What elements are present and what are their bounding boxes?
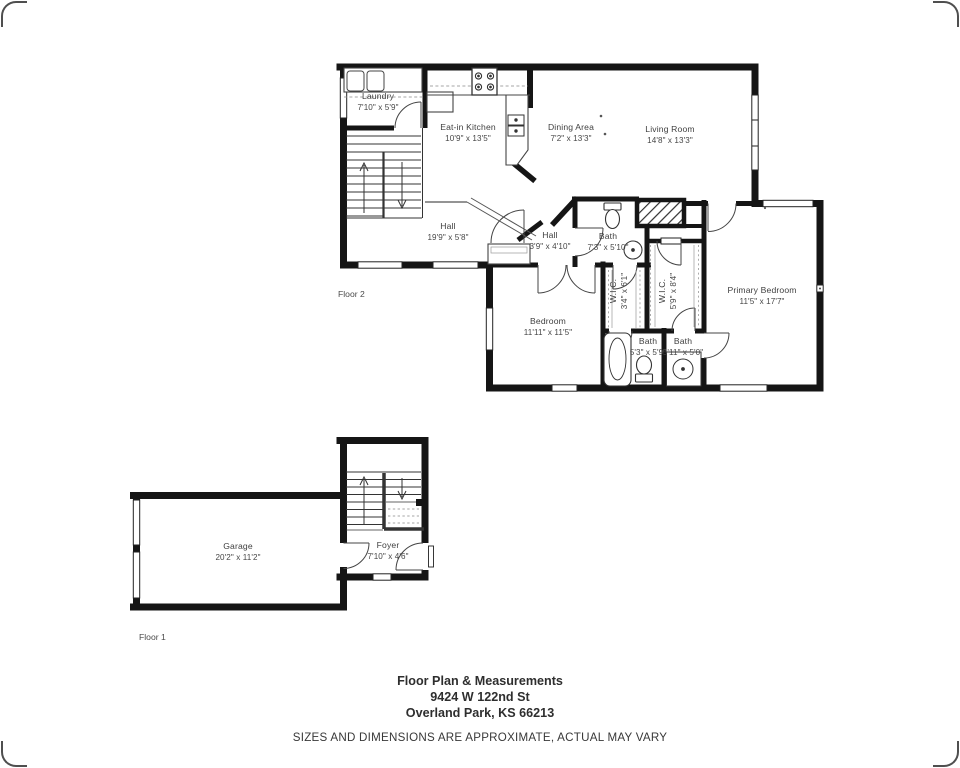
room-label-hall-main: Hall 19'9" x 5'8" xyxy=(427,221,468,243)
bathtub-icon xyxy=(604,333,631,386)
room-dims: 5'11" x 5'0" xyxy=(663,347,704,358)
room-dims: 11'5" x 17'7" xyxy=(727,296,796,307)
floor1-label: Floor 1 xyxy=(139,632,166,642)
floor2-label: Floor 2 xyxy=(338,289,365,299)
room-name: Laundry xyxy=(357,91,398,102)
room-name: Bedroom xyxy=(524,316,573,327)
room-name: Primary Bedroom xyxy=(727,285,796,296)
room-dims: 7'3" x 5'10" xyxy=(587,242,628,253)
room-label-foyer: Foyer 7'10" x 4'6" xyxy=(367,540,408,562)
room-label-bath-right: Bath 5'11" x 5'0" xyxy=(663,336,704,358)
room-name: W.I.C. xyxy=(608,273,619,310)
room-dims: 10'9" x 13'5" xyxy=(440,133,496,144)
room-label-dining-area: Dining Area 7'2" x 13'3" xyxy=(548,122,594,144)
room-dims: 3'4" x 6'1" xyxy=(619,273,630,310)
room-dims: 11'11" x 11'5" xyxy=(524,327,573,338)
stair-opening-hatch xyxy=(637,200,684,226)
wic-large-bottom-door-arc xyxy=(672,308,695,331)
room-name: Bath xyxy=(663,336,704,347)
room-name: Bath xyxy=(630,336,667,347)
room-label-wic-large: W.I.C. 5'9" x 8'4" xyxy=(657,273,679,310)
address-line2: Overland Park, KS 66213 xyxy=(0,706,960,720)
kitchen-sink-icon xyxy=(508,115,524,136)
address-line1: 9424 W 122nd St xyxy=(0,690,960,704)
room-label-wic-small: W.I.C. 3'4" x 6'1" xyxy=(608,273,630,310)
toilet-icon xyxy=(636,356,653,382)
floor-plan-page: Laundry 7'10" x 5'9" Eat-in Kitchen 10'9… xyxy=(0,0,960,768)
room-label-eat-in-kitchen: Eat-in Kitchen 10'9" x 13'5" xyxy=(440,122,496,144)
room-name: Garage xyxy=(215,541,260,552)
room-name: W.I.C. xyxy=(657,273,668,310)
laundry-door-arc xyxy=(395,102,421,128)
room-label-hall-small: Hall 3'9" x 4'10" xyxy=(529,230,570,252)
wic-large-top-door-arc xyxy=(657,241,681,265)
room-dims: 20'2" x 11'2" xyxy=(215,552,260,563)
garage-entry-door-arc xyxy=(344,543,370,569)
room-dims: 7'2" x 13'3" xyxy=(548,133,594,144)
room-dims: 14'8" x 13'3" xyxy=(645,135,694,146)
floor1-plan xyxy=(130,437,434,611)
floor2-plan xyxy=(337,64,824,392)
bedroom-double-door-arcs xyxy=(538,265,595,293)
bath-right-door-arc xyxy=(704,333,729,358)
room-label-garage: Garage 20'2" x 11'2" xyxy=(215,541,260,563)
photo-corner-top-left xyxy=(1,1,27,27)
room-name: Bath xyxy=(587,231,628,242)
room-name: Eat-in Kitchen xyxy=(440,122,496,133)
room-dims: 5'9" x 8'4" xyxy=(668,273,679,310)
floor-plan-drawing xyxy=(0,0,960,768)
disclaimer-text: SIZES AND DIMENSIONS ARE APPROXIMATE, AC… xyxy=(0,731,960,744)
room-name: Hall xyxy=(529,230,570,241)
room-dims: 7'10" x 5'9" xyxy=(357,102,398,113)
room-name: Foyer xyxy=(367,540,408,551)
closet-icon xyxy=(488,244,530,264)
room-label-bath-main: Bath 7'3" x 5'10" xyxy=(587,231,628,253)
primary-bedroom-door-arc xyxy=(708,204,736,232)
room-name: Dining Area xyxy=(548,122,594,133)
room-label-bedroom: Bedroom 11'11" x 11'5" xyxy=(524,316,573,338)
stairs-icon xyxy=(346,472,424,530)
room-label-primary-bedroom: Primary Bedroom 11'5" x 17'7" xyxy=(727,285,796,307)
room-label-living-room: Living Room 14'8" x 13'3" xyxy=(645,124,694,146)
room-label-laundry: Laundry 7'10" x 5'9" xyxy=(357,91,398,113)
room-dims: 3'9" x 4'10" xyxy=(529,241,570,252)
toilet-icon xyxy=(604,203,621,229)
room-dims: 19'9" x 5'8" xyxy=(427,232,468,243)
room-dims: 5'3" x 5'9" xyxy=(630,347,667,358)
room-name: Living Room xyxy=(645,124,694,135)
stove-icon xyxy=(472,68,497,95)
room-label-bath-left: Bath 5'3" x 5'9" xyxy=(630,336,667,358)
plan-title: Floor Plan & Measurements xyxy=(0,674,960,688)
room-dims: 7'10" x 4'6" xyxy=(367,551,408,562)
stairs-icon xyxy=(346,128,423,218)
room-name: Hall xyxy=(427,221,468,232)
